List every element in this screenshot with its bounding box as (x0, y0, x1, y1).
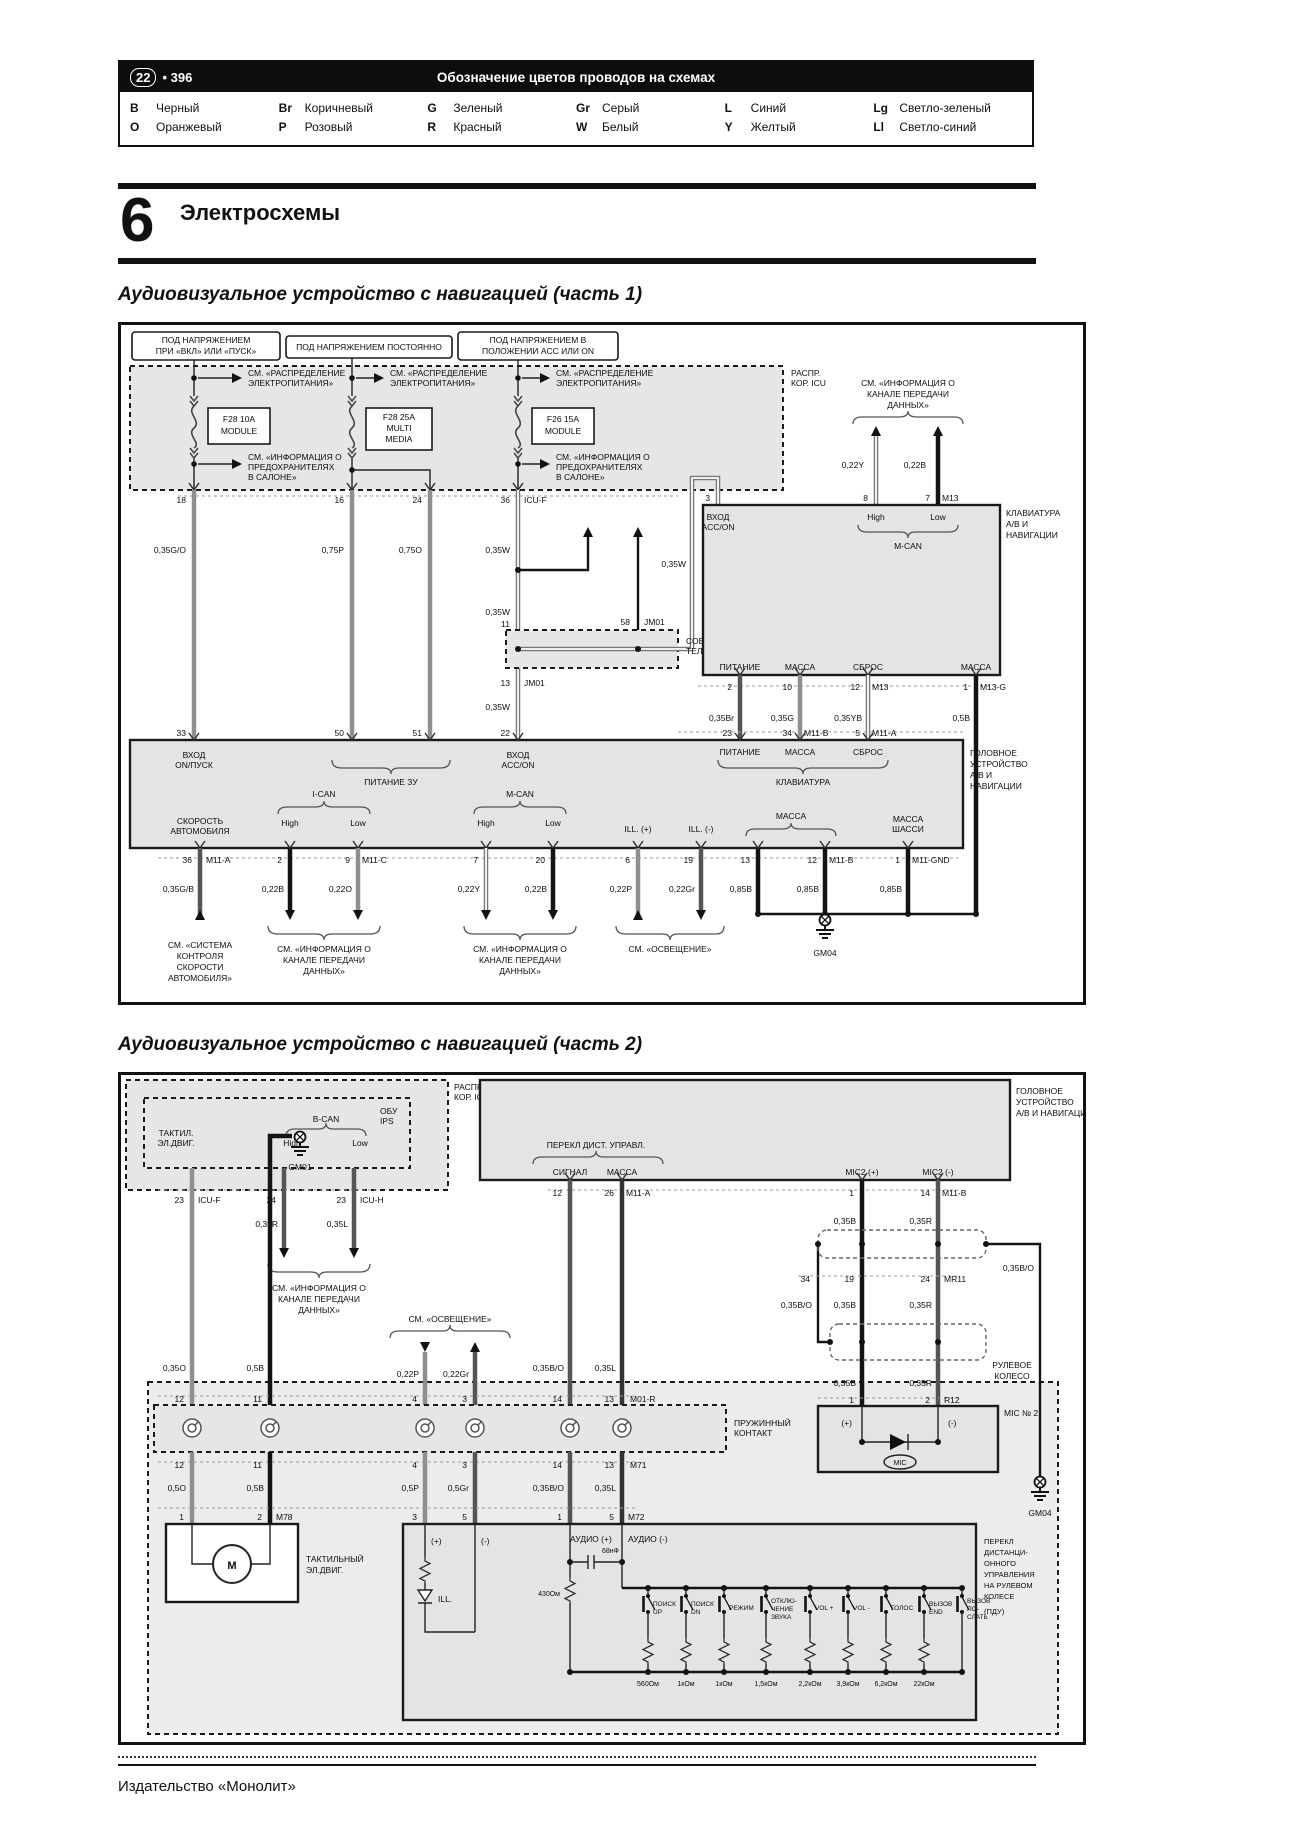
wire-color-label: 0,85B (797, 884, 820, 894)
ref-note: ДАННЫХ» (303, 966, 345, 976)
pin-label: 2 (925, 1395, 930, 1405)
component-label: А/В И (1006, 519, 1028, 529)
switch-label: ПО- (967, 1606, 979, 1613)
color-name: Зеленый (453, 101, 502, 115)
color-code: B (130, 101, 156, 115)
component-label: ПЕРЕКЛ (984, 1537, 1014, 1546)
color-code: Lg (873, 101, 899, 115)
wire-color-label: 0,22B (262, 884, 285, 894)
pin-label: 34 (801, 1274, 811, 1284)
connector-label: M11-A (206, 855, 231, 865)
bus-label: B-CAN (313, 1114, 339, 1124)
divider-rule (118, 258, 1036, 264)
connector-label: M11-GND (912, 855, 950, 865)
pin-label: 14 (553, 1394, 563, 1404)
wire-color-label: 0,35B/O (781, 1300, 813, 1310)
wire-color-label: 0,35B/O (533, 1483, 565, 1493)
pin-label: 33 (177, 728, 187, 738)
port-label: АУДИО (+) (570, 1534, 612, 1544)
header-title: Обозначение цветов проводов на схемах (120, 70, 1032, 85)
pin-label: 13 (605, 1394, 615, 1404)
section-number: 6 (120, 190, 154, 252)
legend-item: WБелый (576, 120, 725, 134)
wire-color-label: 0,35R (255, 1219, 278, 1229)
ref-note: СМ. «СИСТЕМА (168, 940, 233, 950)
wire-color-label: 0,75O (399, 545, 423, 555)
component-label: ЭЛ.ДВИГ. (306, 1565, 343, 1575)
switch-label: ПОИСК (691, 1601, 714, 1608)
ref-note: АВТОМОБИЛЯ» (168, 973, 232, 983)
diagram2-title: Аудиовизуальное устройство с навигацией … (118, 1034, 642, 1056)
color-name: Светло-синий (899, 120, 976, 134)
footer-publisher: Издательство «Монолит» (118, 1778, 296, 1795)
port-label: ОN/ПУСК (175, 760, 213, 770)
port-label: Low (350, 818, 366, 828)
ref-note: КАНАЛЕ ПЕРЕДАЧИ (283, 955, 365, 965)
color-name: Желтый (751, 120, 796, 134)
divider-rule (118, 183, 1036, 189)
wire-color-label: 0,35B/O (1003, 1263, 1035, 1273)
color-code: Ll (873, 120, 899, 134)
wire-color-label: 0,5B (247, 1483, 265, 1493)
legend-item: PРозовый (279, 120, 428, 134)
wire-color-label: 0,5B (953, 713, 971, 723)
connector-label: КОР. ICU (791, 378, 826, 388)
wire-color-label: 0,35O (163, 1363, 187, 1373)
pin-label: 1 (895, 855, 900, 865)
component-label: ДИСТАНЦИ- (984, 1548, 1028, 1557)
component-label: IPS (380, 1116, 394, 1126)
color-name: Оранжевый (156, 120, 222, 134)
pin-label: 23 (175, 1195, 185, 1205)
power-source-label: ПОД НАПРЯЖЕНИЕМ В (490, 335, 587, 345)
port-label: ЭЛ.ДВИГ. (157, 1138, 194, 1148)
diagram1-schematic: РАСПР. КОР. ICU ПОД НАПРЯЖЕНИЕМ ПРИ «ВКЛ… (118, 322, 1086, 1005)
port-label: High (281, 818, 299, 828)
component-label: MIC № 2 (1004, 1408, 1038, 1418)
port-label: High (867, 512, 885, 522)
ref-note: ДАННЫХ» (887, 400, 929, 410)
pin-label: 24 (921, 1274, 931, 1284)
wire-color-label: 0,35B (834, 1378, 857, 1388)
connector-label: M72 (628, 1512, 645, 1522)
pin-label: 19 (684, 855, 694, 865)
fuse-label: MULTI (387, 423, 412, 433)
pin-label: 3 (412, 1512, 417, 1522)
port-label: (+) (431, 1536, 442, 1546)
fuse-label: MODULE (221, 426, 258, 436)
connector-label: M11-C (362, 855, 387, 865)
wire-color-label: 0,22Gr (669, 884, 695, 894)
fuse-label: MEDIA (386, 434, 413, 444)
connector-label: РАСПР. (791, 368, 820, 378)
switch-label: ЗВУКА (771, 1614, 792, 1621)
ref-note: КАНАЛЕ ПЕРЕДАЧИ (278, 1294, 360, 1304)
pin-label: 12 (175, 1460, 185, 1470)
ref-note: В САЛОНЕ» (556, 472, 605, 482)
color-code: Br (279, 101, 305, 115)
power-source-label: ПОД НАПРЯЖЕНИЕМ ПОСТОЯННО (296, 342, 442, 352)
color-name: Светло-зеленый (899, 101, 991, 115)
port-label: (-) (481, 1536, 490, 1546)
ref-note: ЭЛЕКТРОПИТАНИЯ» (390, 378, 475, 388)
connector-label: M01-R (630, 1394, 656, 1404)
resistor-label: 1,5кОм (754, 1681, 777, 1688)
port-label: (+) (841, 1418, 852, 1428)
connector-label: M71 (630, 1460, 647, 1470)
ref-note: КАНАЛЕ ПЕРЕДАЧИ (867, 389, 949, 399)
fuse-label: MODULE (545, 426, 582, 436)
wire-color-label: 0,22Y (842, 460, 865, 470)
port-label: ILL. (-) (688, 824, 713, 834)
connector-label: JM01 (524, 678, 545, 688)
color-name: Розовый (305, 120, 353, 134)
pin-label: 3 (705, 493, 710, 503)
connector-label: MR11 (944, 1274, 966, 1284)
connector-label: M13 (872, 682, 889, 692)
pin-label: 26 (605, 1188, 615, 1198)
ground-label: GM04 (813, 948, 836, 958)
pin-label: 5 (462, 1512, 467, 1522)
port-label: Low (352, 1138, 368, 1148)
color-code: W (576, 120, 602, 134)
ref-note: СМ. «ИНФОРМАЦИЯ О (272, 1283, 366, 1293)
pin-label: 23 (723, 728, 733, 738)
legend-item: GrСерый (576, 101, 725, 115)
port-label: ПИТАНИЕ ЗУ (364, 777, 418, 787)
ref-note: КАНАЛЕ ПЕРЕДАЧИ (479, 955, 561, 965)
wire-color-label: 0,35B (834, 1216, 857, 1226)
pin-label: 11 (253, 1394, 262, 1404)
resistor-label: 1кОм (715, 1681, 732, 1688)
switch-label: ОТКЛЮ- (771, 1598, 797, 1605)
switch-label: РЕЖИМ (729, 1605, 754, 1612)
wire (518, 534, 588, 570)
color-name: Серый (602, 101, 639, 115)
pin-label: 5 (855, 728, 860, 738)
resistor-label: 560Ом (637, 1681, 659, 1688)
wire-color-label: 0,85B (880, 884, 903, 894)
wire-color-label: 0,35L (327, 1219, 349, 1229)
connector-label: R12 (944, 1395, 960, 1405)
wire-color-label: 0,35L (595, 1363, 617, 1373)
connector-label: M13 (942, 493, 959, 503)
color-code: P (279, 120, 305, 134)
wire-color-label: 0,22P (397, 1369, 420, 1379)
color-code: O (130, 120, 156, 134)
pin-label: 34 (783, 728, 793, 738)
switch-label: VOL + (815, 1605, 834, 1612)
pin-label: 2 (277, 855, 282, 865)
wire (195, 848, 979, 920)
brace (464, 926, 576, 940)
wire-color-label: 0,35L (595, 1483, 617, 1493)
wire-color-label: 0,35G/O (154, 545, 187, 555)
connector-label: M11-B (942, 1188, 967, 1198)
wire-color-label: 0,35W (485, 607, 510, 617)
component-label: ПРУЖИННЫЙ (734, 1417, 791, 1428)
component-label: А/В И (970, 770, 992, 780)
resistor-label: 430Ом (538, 1591, 560, 1598)
wire-color-header: 22 • 396 Обозначение цветов проводов на … (118, 60, 1034, 147)
legend-item: OОранжевый (130, 120, 279, 134)
component-label: КЛАВИАТУРА (1006, 508, 1061, 518)
pin-label: 14 (553, 1460, 563, 1470)
color-code: R (427, 120, 453, 134)
pin-label: 1 (963, 682, 968, 692)
legend-item: BrКоричневый (279, 101, 428, 115)
connector-label: M13-G (980, 682, 1006, 692)
wire-color-label: 0,35W (485, 545, 510, 555)
port-label: ШАССИ (892, 824, 924, 834)
wire-color-label: 0,35G (771, 713, 794, 723)
port-label: ПИТАНИЕ (720, 662, 761, 672)
brace (390, 1325, 510, 1338)
legend-item: RКрасный (427, 120, 576, 134)
switch-label: END (929, 1609, 943, 1616)
ref-note: ДАННЫХ» (499, 966, 541, 976)
pin-label: 6 (625, 855, 630, 865)
wire (194, 490, 518, 740)
section-title: Электросхемы (180, 200, 340, 226)
bus-label: M-CAN (506, 789, 534, 799)
connector-label: M11-A (626, 1188, 651, 1198)
ref-note: СМ. «ИНФОРМАЦИЯ О (556, 452, 650, 462)
switch-label: UP (653, 1609, 662, 1616)
brace (268, 926, 380, 940)
port-label: ACC/ON (701, 522, 734, 532)
component-label: ILL. (438, 1594, 452, 1604)
port-label: ВХОД (183, 750, 206, 760)
pin-label: 22 (501, 728, 511, 738)
component-label: 68нФ (602, 1548, 619, 1555)
pin-label: 24 (413, 495, 423, 505)
pin-label: 1 (179, 1512, 184, 1522)
port-label: Low (930, 512, 946, 522)
ref-note: СКОРОСТИ (177, 962, 224, 972)
color-name: Синий (751, 101, 786, 115)
bus-label: M-CAN (894, 541, 922, 551)
spring-contact-box (154, 1405, 726, 1452)
ground-label: GM01 (288, 1162, 311, 1172)
resistor-label: 22кОм (913, 1681, 934, 1688)
component-label: НА РУЛЕВОМ (984, 1581, 1033, 1590)
connector-label: JM01 (644, 617, 665, 627)
switch-label: ВЫЗОВ (929, 1601, 952, 1608)
port-label: ILL. (+) (624, 824, 651, 834)
switch-label: ПОИСК (653, 1601, 676, 1608)
wire-color-label: 0,35W (661, 559, 686, 569)
wire-color-label: 0,85B (730, 884, 753, 894)
wire-color-label: 0,22B (525, 884, 548, 894)
color-name: Белый (602, 120, 638, 134)
pin-label: 13 (605, 1460, 615, 1470)
head-unit-box (130, 740, 963, 848)
port-label: КЛАВИАТУРА (776, 777, 831, 787)
component-label: ГОЛОВНОЕ (1016, 1086, 1063, 1096)
pin-label: 1 (849, 1188, 854, 1198)
brace (853, 411, 963, 424)
fuse-label: F26 15A (547, 414, 579, 424)
component-label: КОНТАКТ (734, 1428, 772, 1438)
connector-label: ICU-F (524, 495, 547, 505)
port-label: МАССА (607, 1167, 638, 1177)
ground-label: GM04 (1028, 1508, 1051, 1518)
brace (616, 926, 724, 940)
pin-label: 3 (462, 1460, 467, 1470)
connector-label: M78 (276, 1512, 293, 1522)
component-label: УСТРОЙСТВО (970, 758, 1028, 769)
connector-label: ICU-F (198, 1195, 221, 1205)
power-source-label: ПОД НАПРЯЖЕНИЕМ (162, 335, 251, 345)
wire-color-label: 0,35Br (709, 713, 734, 723)
ref-note: СМ. «ИНФОРМАЦИЯ О (473, 944, 567, 954)
wire-color-label: 0,22B (904, 460, 927, 470)
port-label: АВТОМОБИЛЯ (170, 826, 229, 836)
wire-color-label: 0,35R (909, 1300, 932, 1310)
color-code: Y (725, 120, 751, 134)
pin-label: 12 (808, 855, 818, 865)
port-label: Low (545, 818, 561, 828)
component-label: ОННОГО (984, 1559, 1016, 1568)
connector-label: M11-A (872, 728, 897, 738)
ref-note: ЭЛЕКТРОПИТАНИЯ» (556, 378, 641, 388)
port-label: ПИТАНИЕ (720, 747, 761, 757)
wire-color-label: 0,35R (909, 1216, 932, 1226)
fuse-label: F28 25A (383, 412, 415, 422)
port-label: ACC/ON (501, 760, 534, 770)
ref-note: СМ. «ИНФОРМАЦИЯ О (277, 944, 371, 954)
brace (268, 1264, 370, 1278)
component-label: РУЛЕВОЕ (992, 1360, 1032, 1370)
switch-label: ГОЛОС (891, 1605, 913, 1612)
wire-color-label: 0,5B (247, 1363, 265, 1373)
power-source-label: ПОЛОЖЕНИИ ACC ИЛИ ON (482, 346, 594, 356)
component-label: УСТРОЙСТВО (1016, 1096, 1074, 1107)
component-label: MIC (894, 1460, 907, 1467)
pin-label: 3 (462, 1394, 467, 1404)
ref-note: КОНТРОЛЯ (177, 951, 224, 961)
port-label: СБРОС (853, 747, 883, 757)
wire-color-label: 0,75P (322, 545, 345, 555)
component-label: НАВИГАЦИИ (970, 781, 1022, 791)
wire-color-label: 0,22P (610, 884, 633, 894)
footer-rule (118, 1764, 1036, 1766)
wire-color-label: 0,5P (402, 1483, 420, 1493)
pin-label: 7 (925, 493, 930, 503)
color-code: Gr (576, 101, 602, 115)
pin-label: 23 (337, 1195, 347, 1205)
port-label: СБРОС (853, 662, 883, 672)
shield-box (830, 1324, 986, 1360)
legend-item: LlСветло-синий (873, 120, 1022, 134)
diagram2-schematic: РУЛЕВОЕ КОЛЕСО РАСПР. КОР. ICU ОБУ IPS Т… (118, 1072, 1086, 1745)
resistor-label: 3,9кОм (836, 1681, 859, 1688)
bus-label: I-CAN (312, 789, 335, 799)
page-number: • 396 (162, 70, 192, 85)
resistor-label: 1кОм (677, 1681, 694, 1688)
component-label: КОЛЕСО (994, 1371, 1030, 1381)
wire-color-label: 0,35G/B (163, 884, 195, 894)
port-label: ПЕРЕКЛ ДИСТ. УПРАВЛ. (547, 1140, 646, 1150)
port-label: МАССА (785, 662, 816, 672)
ref-note: СМ. «ОСВЕЩЕНИЕ» (629, 944, 712, 954)
connector-label: M11-B (829, 855, 854, 865)
component-label: (ПДУ) (984, 1607, 1005, 1616)
legend-item: LgСветло-зеленый (873, 101, 1022, 115)
footer-divider (118, 1756, 1036, 1758)
pin-label: 58 (621, 617, 631, 627)
legend-item: YЖелтый (725, 120, 874, 134)
pin-label: 11 (501, 619, 510, 629)
pin-label: 36 (183, 855, 193, 865)
pin-label: 1 (557, 1512, 562, 1522)
pin-label: 9 (345, 855, 350, 865)
component-label: ГОЛОВНОЕ (970, 748, 1017, 758)
port-label: АУДИО (-) (628, 1534, 668, 1544)
remote-switch-box (403, 1524, 976, 1720)
wire-color-label: 0,35YB (834, 713, 862, 723)
wire-color-label: 0,22Y (458, 884, 481, 894)
port-label: МАССА (893, 814, 924, 824)
port-label: МАССА (785, 747, 816, 757)
legend-item: GЗеленый (427, 101, 576, 115)
pin-label: 7 (473, 855, 478, 865)
pin-label: 20 (536, 855, 546, 865)
ref-note: СМ. «ОСВЕЩЕНИЕ» (409, 1314, 492, 1324)
switch-label: VOL - (853, 1605, 870, 1612)
wire-color-label: 0,5O (168, 1483, 187, 1493)
wire-color-label: 0,22O (329, 884, 353, 894)
color-name: Красный (453, 120, 501, 134)
component-label: КОЛЕСЕ (984, 1592, 1014, 1601)
color-code: G (427, 101, 453, 115)
pin-label: 16 (335, 495, 345, 505)
wire-color-label: 0,35B/O (533, 1363, 565, 1373)
pin-label: 13 (741, 855, 751, 865)
head-unit-box (480, 1080, 1010, 1180)
port-label: ВХОД (507, 750, 530, 760)
ref-note: СМ. «РАСПРЕДЕЛЕНИЕ (248, 368, 346, 378)
motor-label: M (227, 1560, 236, 1572)
resistor-label: 2,2кОм (798, 1681, 821, 1688)
shield-box (818, 1230, 986, 1258)
port-label: СКОРОСТЬ (177, 816, 224, 826)
pin-label: 11 (253, 1460, 262, 1470)
component-label: УПРАВЛЕНИЯ (984, 1570, 1035, 1579)
color-legend: BЧерный BrКоричневый GЗеленый GrСерый LС… (120, 92, 1032, 145)
pin-label: 14 (921, 1188, 931, 1198)
wire-color-label: 0,22Gr (443, 1369, 469, 1379)
port-label: MIC2 (+) (845, 1167, 878, 1177)
legend-item: BЧерный (130, 101, 279, 115)
pin-label: 8 (863, 493, 868, 503)
port-label: ТАКТИЛ. (159, 1128, 194, 1138)
manual-page: 22 • 396 Обозначение цветов проводов на … (0, 0, 1300, 1839)
port-label: ВХОД (707, 512, 730, 522)
wire-color-label: 0,35R (909, 1378, 932, 1388)
pin-label: 4 (412, 1394, 417, 1404)
resistor-label: 6,2кОм (874, 1681, 897, 1688)
pin-label: 12 (553, 1188, 563, 1198)
ref-note: ДАННЫХ» (298, 1305, 340, 1315)
pin-label: 2 (727, 682, 732, 692)
component-label: ОБУ (380, 1106, 398, 1116)
component-label: НАВИГАЦИИ (1006, 530, 1058, 540)
pin-label: 50 (335, 728, 345, 738)
port-label: МАССА (961, 662, 992, 672)
ref-note: СМ. «РАСПРЕДЕЛЕНИЕ (556, 368, 654, 378)
